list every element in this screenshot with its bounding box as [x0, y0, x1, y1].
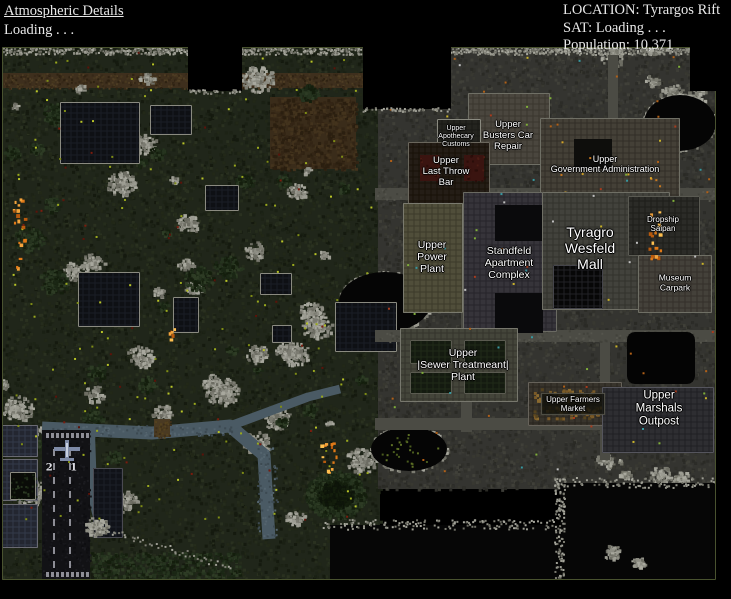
- atmospheric-details-panel: Atmospheric Details Loading . . .: [4, 2, 124, 40]
- location-info-panel: LOCATION: Tyrargos Rift SAT: Loading . .…: [563, 2, 720, 55]
- location-value: LOCATION: Tyrargos Rift: [563, 2, 720, 20]
- game-screen: Atmospheric Details Loading . . . LOCATI…: [0, 0, 731, 599]
- population-value: Population: 10,371: [563, 37, 720, 55]
- atmospheric-details-title: Atmospheric Details: [4, 2, 124, 21]
- map-canvas[interactable]: [2, 47, 716, 580]
- runway-number-marking: 2 1: [46, 463, 84, 474]
- satellite-map-view[interactable]: Upper Apothecary Customs Upper Busters C…: [2, 47, 716, 580]
- atmospheric-details-status: Loading . . .: [4, 21, 124, 40]
- sat-status: SAT: Loading . . .: [563, 20, 720, 38]
